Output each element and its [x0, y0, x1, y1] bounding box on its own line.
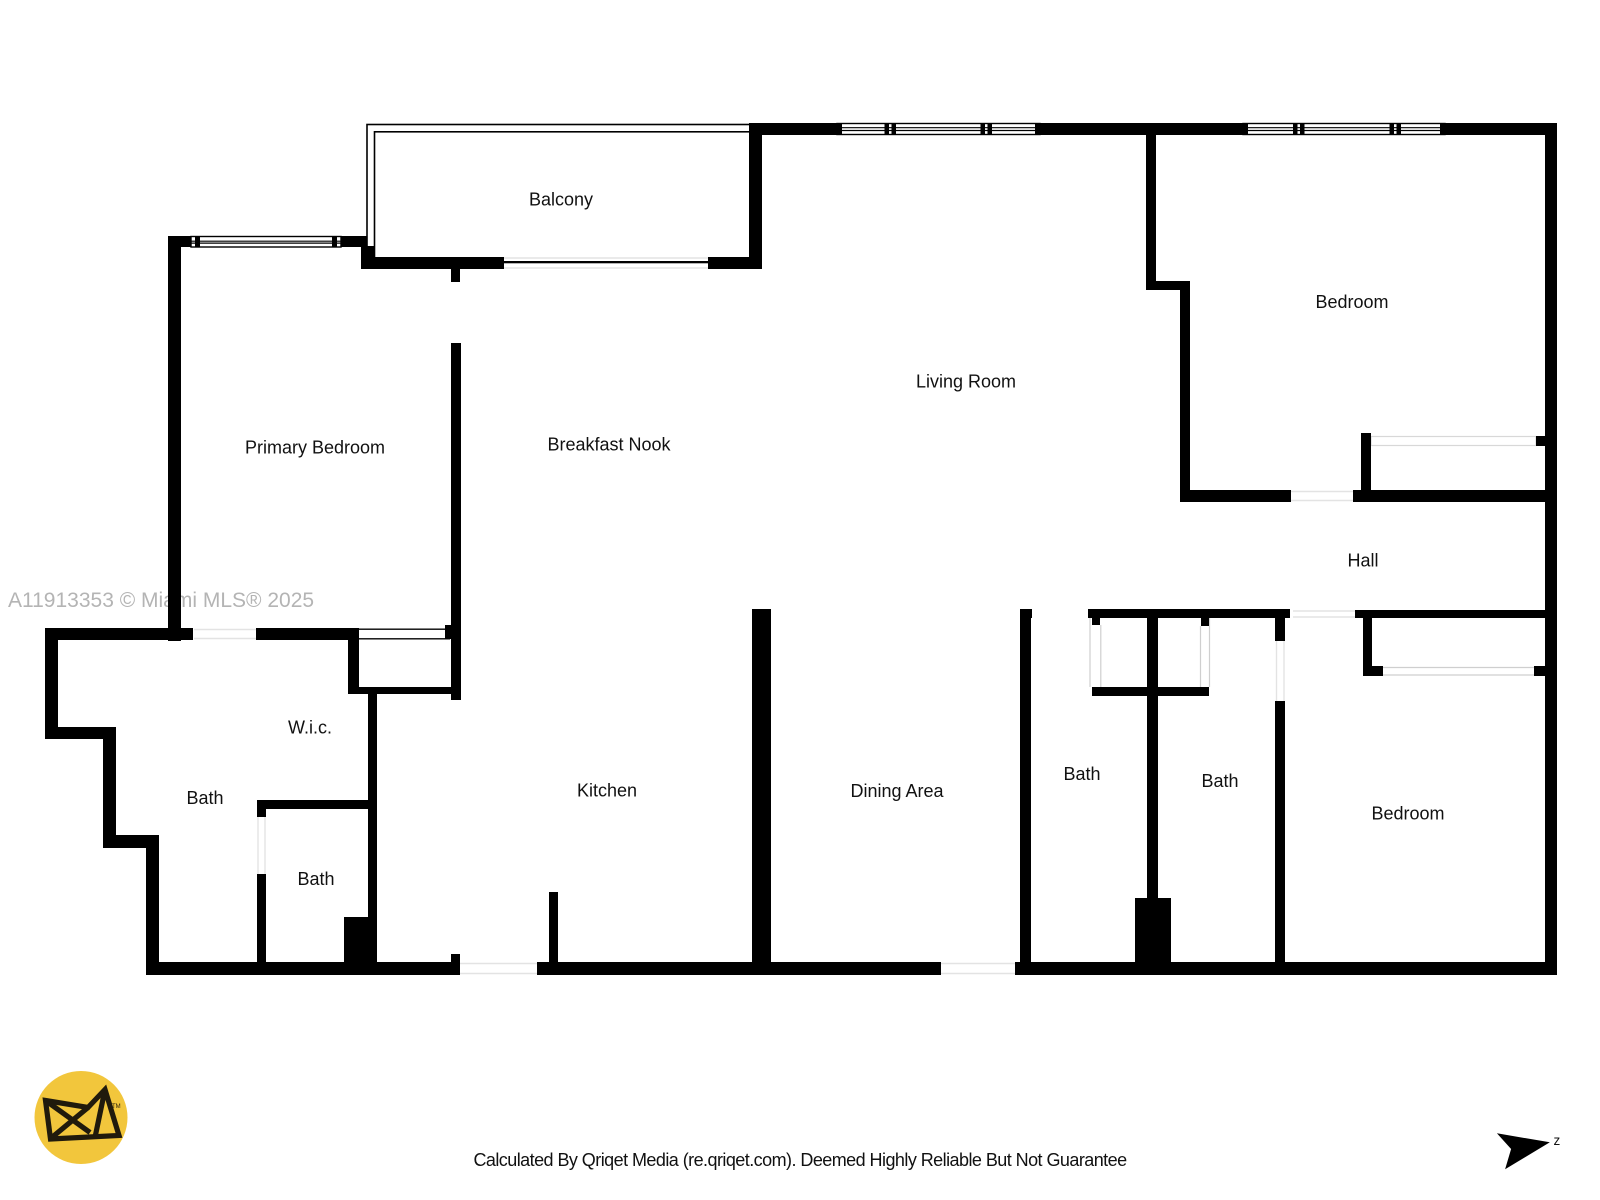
svg-text:Bath: Bath: [297, 869, 334, 889]
svg-text:Dining Area: Dining Area: [850, 781, 944, 801]
svg-text:Bedroom: Bedroom: [1371, 804, 1444, 824]
svg-text:Bath: Bath: [1063, 764, 1100, 784]
svg-text:Living Room: Living Room: [916, 372, 1016, 392]
svg-text:Breakfast Nook: Breakfast Nook: [547, 435, 671, 455]
svg-text:Bath: Bath: [186, 788, 223, 808]
svg-text:Primary Bedroom: Primary Bedroom: [245, 438, 385, 458]
svg-text:A11913353 © Miami MLS® 2025: A11913353 © Miami MLS® 2025: [8, 589, 314, 612]
svg-text:Bedroom: Bedroom: [1315, 292, 1388, 312]
svg-text:Bath: Bath: [1201, 771, 1238, 791]
svg-text:z: z: [1554, 1133, 1561, 1148]
svg-text:Balcony: Balcony: [529, 190, 593, 210]
svg-text:W.i.c.: W.i.c.: [288, 718, 332, 738]
svg-text:Hall: Hall: [1347, 551, 1378, 571]
svg-text:Calculated By Qriqet Media (re: Calculated By Qriqet Media (re.qriqet.co…: [473, 1150, 1127, 1170]
svg-text:TM: TM: [112, 1104, 121, 1110]
svg-text:Kitchen: Kitchen: [577, 781, 637, 801]
